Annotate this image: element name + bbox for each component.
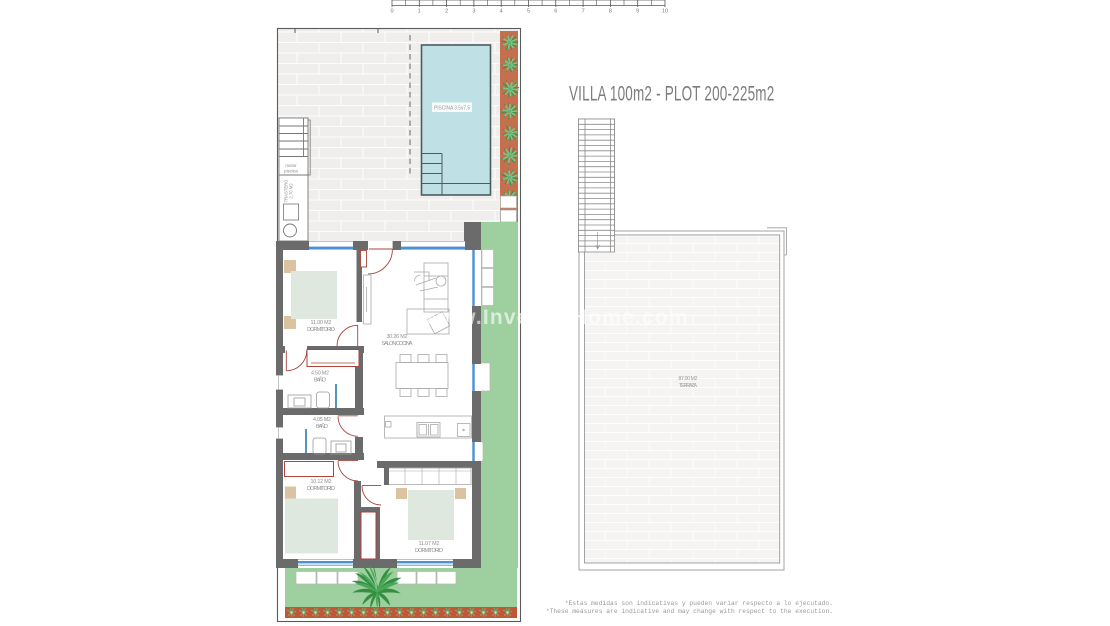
svg-text:9: 9 bbox=[636, 9, 639, 15]
svg-text:DORMITORIO: DORMITORIO bbox=[307, 327, 335, 333]
svg-text:87.00 M2: 87.00 M2 bbox=[679, 376, 698, 382]
svg-text:3: 3 bbox=[472, 9, 475, 15]
svg-text:30.26 M2: 30.26 M2 bbox=[387, 334, 408, 340]
svg-text:motor: motor bbox=[285, 163, 297, 168]
svg-text:0: 0 bbox=[390, 9, 393, 15]
svg-text:5: 5 bbox=[527, 9, 530, 15]
svg-text:11.07 M2: 11.07 M2 bbox=[419, 541, 440, 547]
svg-text:11.00 M2: 11.00 M2 bbox=[311, 320, 332, 326]
svg-text:8: 8 bbox=[609, 9, 612, 15]
svg-text:10.12 M2: 10.12 M2 bbox=[311, 479, 332, 485]
svg-text:www.InvestInHome.com: www.InvestInHome.com bbox=[423, 306, 689, 329]
svg-text:1: 1 bbox=[418, 9, 421, 15]
svg-text:BAÑO: BAÑO bbox=[316, 423, 328, 430]
svg-text:10: 10 bbox=[662, 9, 668, 15]
svg-text:2.70 M2: 2.70 M2 bbox=[289, 183, 294, 199]
svg-text:6: 6 bbox=[554, 9, 557, 15]
svg-text:TERRAZA: TERRAZA bbox=[679, 383, 698, 389]
svg-text:piscina: piscina bbox=[284, 169, 298, 174]
svg-text:VILLA 100m2 - PLOT 200-225m2: VILLA 100m2 - PLOT 200-225m2 bbox=[569, 81, 774, 105]
svg-text:PISCINA 3.5x7.5: PISCINA 3.5x7.5 bbox=[434, 106, 470, 112]
svg-text:4.50 M2: 4.50 M2 bbox=[311, 371, 329, 377]
svg-text:DORMITORIO: DORMITORIO bbox=[307, 486, 335, 492]
svg-text:BAÑO: BAÑO bbox=[314, 377, 326, 384]
svg-text:4: 4 bbox=[500, 9, 503, 15]
svg-text:DORMITORIO: DORMITORIO bbox=[415, 548, 443, 554]
svg-text:SALON COCINA: SALON COCINA bbox=[382, 341, 413, 347]
svg-text:*Estas medidas son indicativas: *Estas medidas son indicativas y pueden … bbox=[565, 600, 833, 607]
svg-text:2: 2 bbox=[445, 9, 448, 15]
svg-text:7: 7 bbox=[582, 9, 585, 15]
svg-text:4.05 M2: 4.05 M2 bbox=[313, 417, 331, 423]
svg-text:*These measures are indicative: *These measures are indicative and may c… bbox=[546, 608, 833, 615]
